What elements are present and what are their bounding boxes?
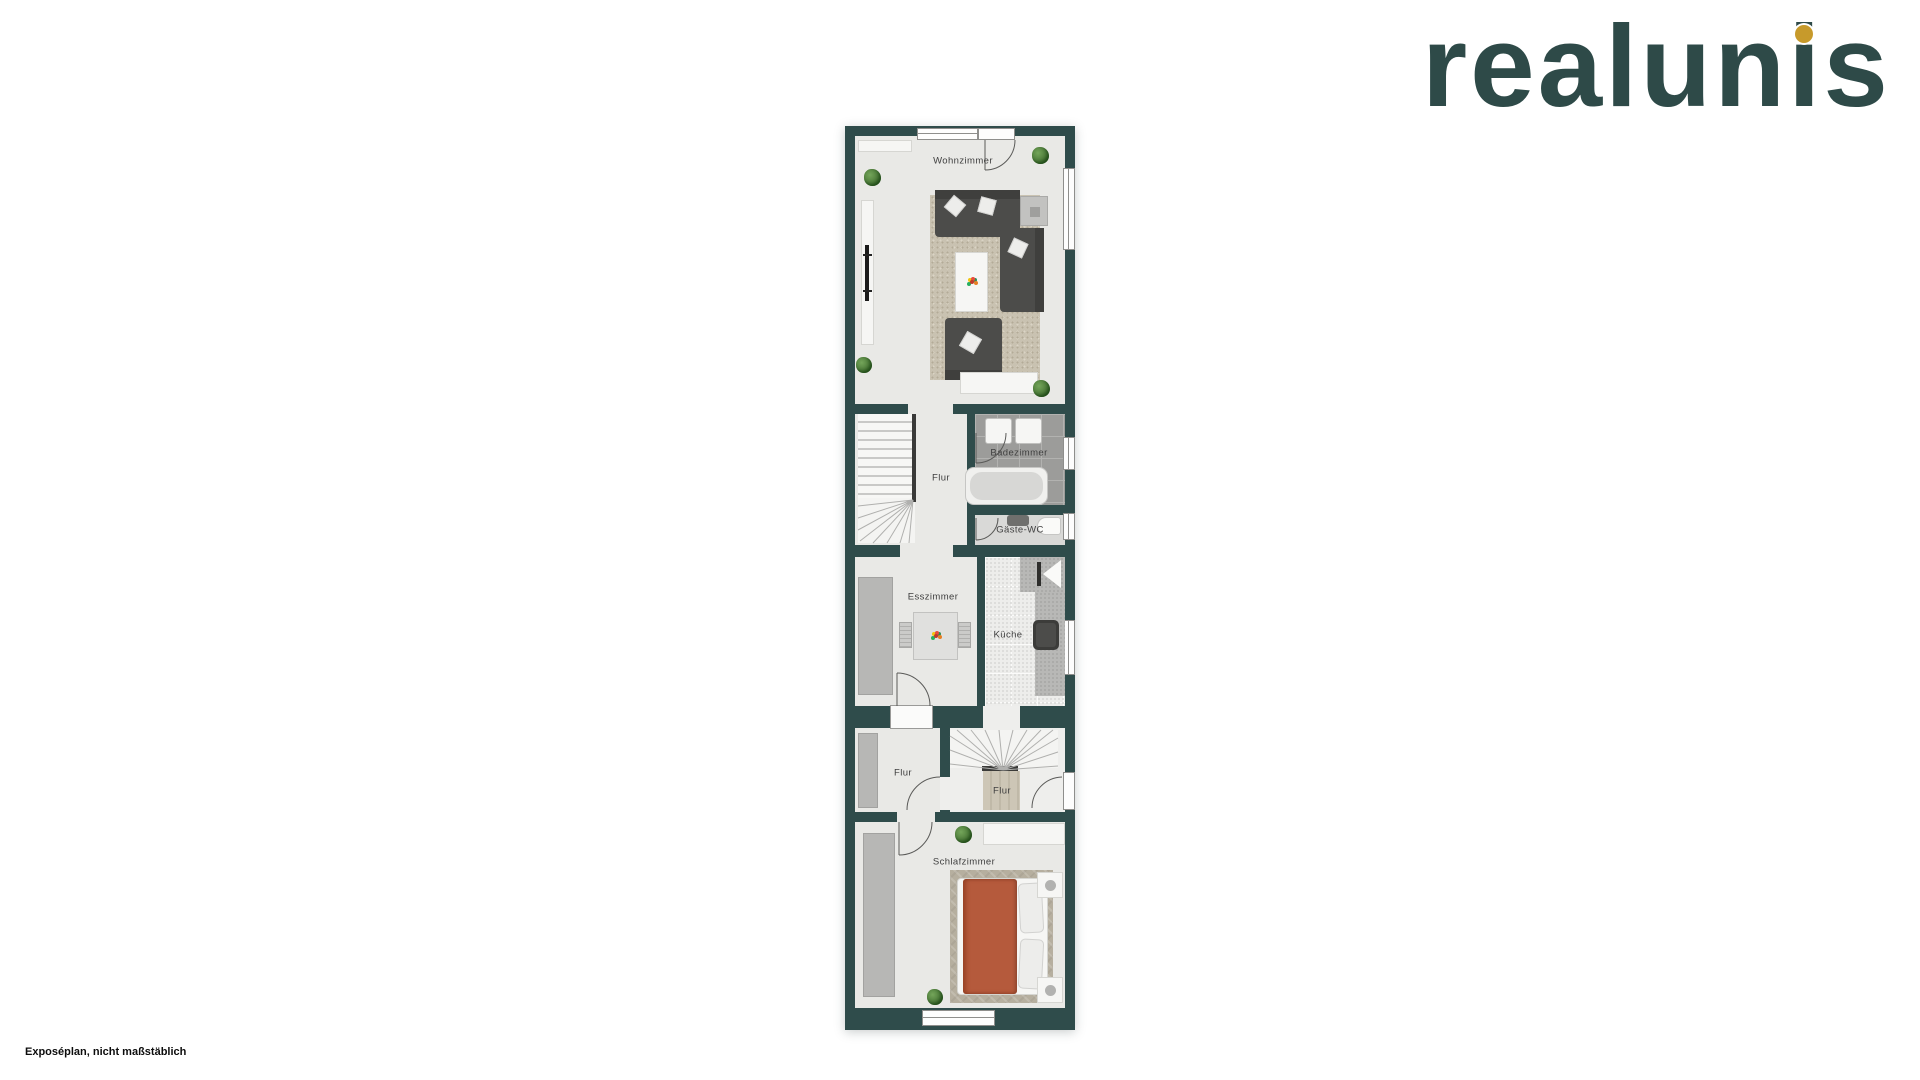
sofa-backrest bbox=[1035, 228, 1044, 312]
brand-logo-accent-dot-icon bbox=[1795, 25, 1813, 43]
flower-bouquet-icon bbox=[970, 280, 974, 284]
room-label-flur-unten: Flur bbox=[894, 768, 912, 779]
hall-cabinet bbox=[858, 733, 878, 808]
door-leaf-esszimmer-flur bbox=[890, 705, 933, 729]
window-wohnzimmer-right bbox=[1063, 168, 1075, 250]
fruit-bowl-icon bbox=[934, 634, 938, 638]
page: realunis bbox=[0, 0, 1920, 1080]
bathtub-basin bbox=[970, 472, 1043, 500]
bathtub bbox=[965, 467, 1048, 505]
coffee-table bbox=[955, 252, 988, 312]
sink bbox=[1015, 418, 1042, 444]
front-door-frame bbox=[1063, 772, 1075, 810]
window-wohnzimmer-top bbox=[917, 128, 978, 140]
tv-foot bbox=[863, 290, 872, 292]
dining-chair bbox=[899, 622, 912, 648]
room-label-flur-mitte: Flur bbox=[932, 473, 950, 484]
nightstand bbox=[1037, 872, 1063, 898]
balcony-door-frame bbox=[978, 128, 1015, 140]
door-opening bbox=[940, 777, 950, 810]
door-opening bbox=[983, 706, 1020, 728]
fridge-door bbox=[1037, 562, 1041, 586]
plant-icon bbox=[927, 989, 943, 1005]
room-label-flur-eingang: Flur bbox=[993, 786, 1011, 797]
wardrobe bbox=[863, 833, 895, 997]
tv-foot bbox=[863, 254, 872, 256]
room-label-gaeste-wc: Gäste-WC bbox=[996, 525, 1044, 536]
plant-icon bbox=[1032, 147, 1049, 164]
side-table-top bbox=[1030, 207, 1040, 217]
nightstand bbox=[1037, 977, 1063, 1003]
sideboard-esszimmer bbox=[858, 577, 893, 695]
dresser bbox=[983, 823, 1065, 845]
staircase-entrance bbox=[950, 730, 1058, 768]
window-schlafzimmer-bottom bbox=[922, 1010, 995, 1026]
window-gaeste-wc bbox=[1063, 513, 1075, 540]
room-label-kueche: Küche bbox=[994, 630, 1023, 641]
side-table bbox=[1020, 196, 1048, 226]
door-opening bbox=[908, 404, 953, 414]
stair-rail bbox=[912, 414, 916, 502]
floorplan: Wohnzimmer Flur Badezimmer Gäste-WC Essz… bbox=[845, 126, 1075, 1030]
plant-icon bbox=[1033, 380, 1050, 397]
staircase-upper bbox=[858, 414, 915, 500]
plant-icon bbox=[856, 357, 872, 373]
stair-winder bbox=[858, 498, 915, 543]
plant-icon bbox=[864, 169, 881, 186]
sofa-backrest bbox=[935, 190, 1020, 199]
dining-table bbox=[913, 612, 958, 660]
sink bbox=[985, 418, 1012, 444]
room-label-wohnzimmer: Wohnzimmer bbox=[933, 156, 993, 167]
plan-disclaimer: Exposéplan, nicht maßstäblich bbox=[25, 1046, 186, 1058]
sofa-pillow bbox=[977, 196, 997, 216]
room-label-schlafzimmer: Schlafzimmer bbox=[933, 857, 995, 868]
sideboard-bottom bbox=[960, 372, 1038, 394]
room-label-badezimmer: Badezimmer bbox=[990, 448, 1047, 459]
plant-icon bbox=[955, 826, 972, 843]
dining-chair bbox=[958, 622, 971, 648]
shelf-top bbox=[858, 140, 912, 152]
lamp-icon bbox=[1045, 880, 1056, 891]
armchair bbox=[945, 318, 1002, 380]
brand-logo-text: realunis bbox=[1422, 1, 1891, 131]
stove-top bbox=[1036, 623, 1056, 647]
room-label-esszimmer: Esszimmer bbox=[908, 592, 959, 603]
armchair-pillow bbox=[959, 331, 982, 354]
door-opening bbox=[897, 812, 935, 822]
lamp-icon bbox=[1045, 985, 1056, 996]
window-badezimmer bbox=[1063, 437, 1075, 470]
sofa-pillow bbox=[1007, 237, 1028, 258]
bed-duvet bbox=[963, 879, 1017, 994]
sofa-right bbox=[1000, 228, 1044, 312]
brand-logo: realunis bbox=[1422, 8, 1902, 128]
door-opening bbox=[900, 545, 953, 557]
stove bbox=[1033, 620, 1059, 650]
